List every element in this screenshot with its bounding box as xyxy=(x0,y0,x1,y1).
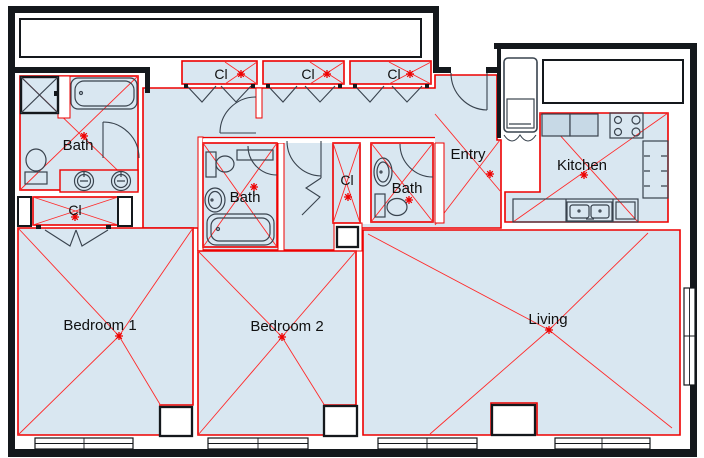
cabinet-door-scallop xyxy=(504,135,536,141)
room-marker-star xyxy=(405,196,413,204)
room-label-entry: Entry xyxy=(450,146,486,163)
window xyxy=(378,438,477,449)
door-jamb xyxy=(338,84,342,88)
window xyxy=(35,438,133,449)
column xyxy=(160,407,192,436)
room-label-closet-hall-3: Cl xyxy=(387,66,400,82)
door-jamb xyxy=(106,225,111,229)
wall-fridge-nook xyxy=(497,48,501,138)
room-marker-star xyxy=(323,70,331,78)
wall-bath2-vestibule xyxy=(278,143,284,251)
column xyxy=(492,405,535,435)
refrigerator-icon xyxy=(504,58,537,132)
door-jamb xyxy=(425,84,429,88)
room-label-bath-main: Bath xyxy=(63,137,94,154)
window xyxy=(684,288,695,385)
floor-plan-canvas: Bath Cl Cl Cl Cl Bath Cl Bath Entry Kitc… xyxy=(0,0,704,458)
column xyxy=(324,406,357,436)
wall-hall-divider xyxy=(256,88,262,118)
wall-corridor-step xyxy=(145,67,150,93)
door-jamb xyxy=(36,225,41,229)
door-jamb xyxy=(266,84,270,88)
room-label-kitchen: Kitchen xyxy=(557,157,607,174)
wall-left xyxy=(8,6,15,457)
wall-bath3-entry xyxy=(435,143,444,223)
room-label-closet-main: Cl xyxy=(68,202,81,218)
window xyxy=(555,438,650,449)
room-label-closet-bedroom-2: Cl xyxy=(340,172,353,188)
room-marker-star xyxy=(344,193,352,201)
room-label-closet-hall-2: Cl xyxy=(301,66,314,82)
wall-above-bath xyxy=(13,67,145,73)
room-label-living: Living xyxy=(528,311,567,328)
wall-entry-jamb-left xyxy=(433,67,451,73)
counter-segment xyxy=(570,114,598,136)
floor-plan-page: Bath Cl Cl Cl Cl Bath Cl Bath Entry Kitc… xyxy=(0,0,704,458)
column xyxy=(337,227,358,247)
wall-step-vertical xyxy=(433,6,439,73)
zone-hall-entry xyxy=(143,75,501,250)
closet-door-panel xyxy=(18,197,31,226)
door-jamb xyxy=(184,84,188,88)
wall-top xyxy=(8,6,439,13)
room-label-bath-3: Bath xyxy=(392,180,423,197)
door-jamb xyxy=(251,84,255,88)
room-label-closet-hall-1: Cl xyxy=(214,66,227,82)
window xyxy=(208,438,308,449)
wall-top-right xyxy=(494,43,697,49)
wall-bottom xyxy=(8,449,697,457)
closet-door-panel xyxy=(118,197,132,226)
exterior-corridor xyxy=(20,19,421,57)
wall-closet-bath3 xyxy=(361,142,370,224)
wall-shower-stub xyxy=(58,76,70,118)
door-jamb xyxy=(353,84,357,88)
room-marker-star xyxy=(406,70,414,78)
wall-right xyxy=(690,43,697,457)
room-marker-star xyxy=(486,170,494,178)
kitchen-counter-north xyxy=(543,60,683,103)
counter-segment xyxy=(542,114,570,136)
room-label-bath-2: Bath xyxy=(230,189,261,206)
room-label-bedroom-1: Bedroom 1 xyxy=(63,317,136,334)
hall-entry-floor xyxy=(143,75,501,250)
room-label-bedroom-2: Bedroom 2 xyxy=(250,318,323,335)
shower-valve-icon xyxy=(54,91,59,96)
